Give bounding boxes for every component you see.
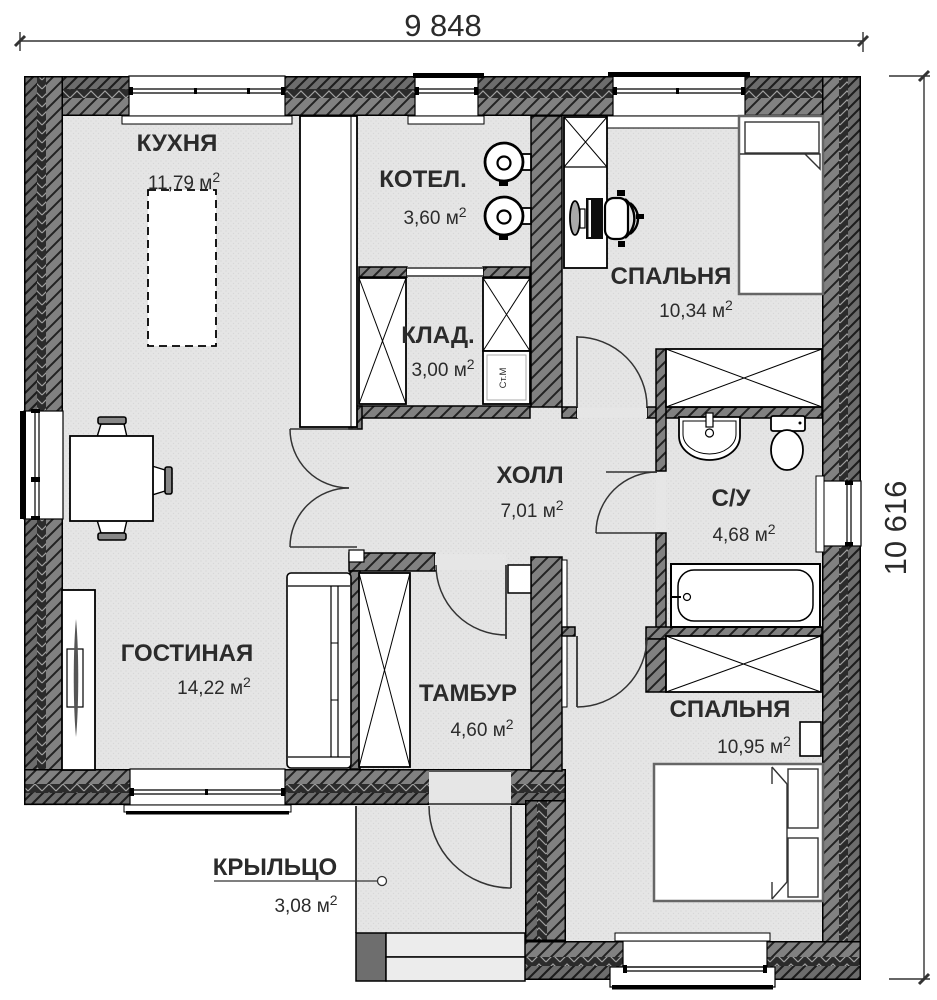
svg-text:КРЫЛЬЦО: КРЫЛЬЦО [213, 854, 337, 881]
svg-text:4,60 м2: 4,60 м2 [450, 716, 513, 741]
svg-text:СПАЛЬНЯ: СПАЛЬНЯ [670, 696, 791, 723]
svg-text:4,68 м2: 4,68 м2 [712, 521, 775, 546]
svg-text:3,60 м2: 3,60 м2 [403, 204, 466, 229]
svg-text:14,22 м2: 14,22 м2 [177, 674, 251, 699]
svg-text:С/У: С/У [712, 485, 752, 512]
svg-text:ТАМБУР: ТАМБУР [419, 680, 517, 707]
svg-text:Ст.М: Ст.М [498, 368, 509, 389]
svg-text:КОТЕЛ.: КОТЕЛ. [379, 166, 467, 193]
svg-text:10,95 м2: 10,95 м2 [717, 733, 791, 758]
svg-text:10 616: 10 616 [878, 481, 913, 576]
svg-text:9 848: 9 848 [404, 8, 482, 43]
svg-text:КУХНЯ: КУХНЯ [137, 130, 218, 157]
svg-text:ГОСТИНАЯ: ГОСТИНАЯ [121, 640, 254, 667]
svg-text:ХОЛЛ: ХОЛЛ [496, 462, 563, 489]
svg-text:КЛАД.: КЛАД. [401, 322, 474, 349]
svg-text:3,00 м2: 3,00 м2 [411, 356, 474, 381]
svg-text:11,79 м2: 11,79 м2 [148, 169, 220, 194]
svg-text:3,08 м2: 3,08 м2 [274, 892, 337, 917]
svg-text:7,01 м2: 7,01 м2 [500, 497, 563, 522]
svg-text:СПАЛЬНЯ: СПАЛЬНЯ [611, 263, 732, 290]
svg-text:10,34 м2: 10,34 м2 [659, 297, 733, 322]
